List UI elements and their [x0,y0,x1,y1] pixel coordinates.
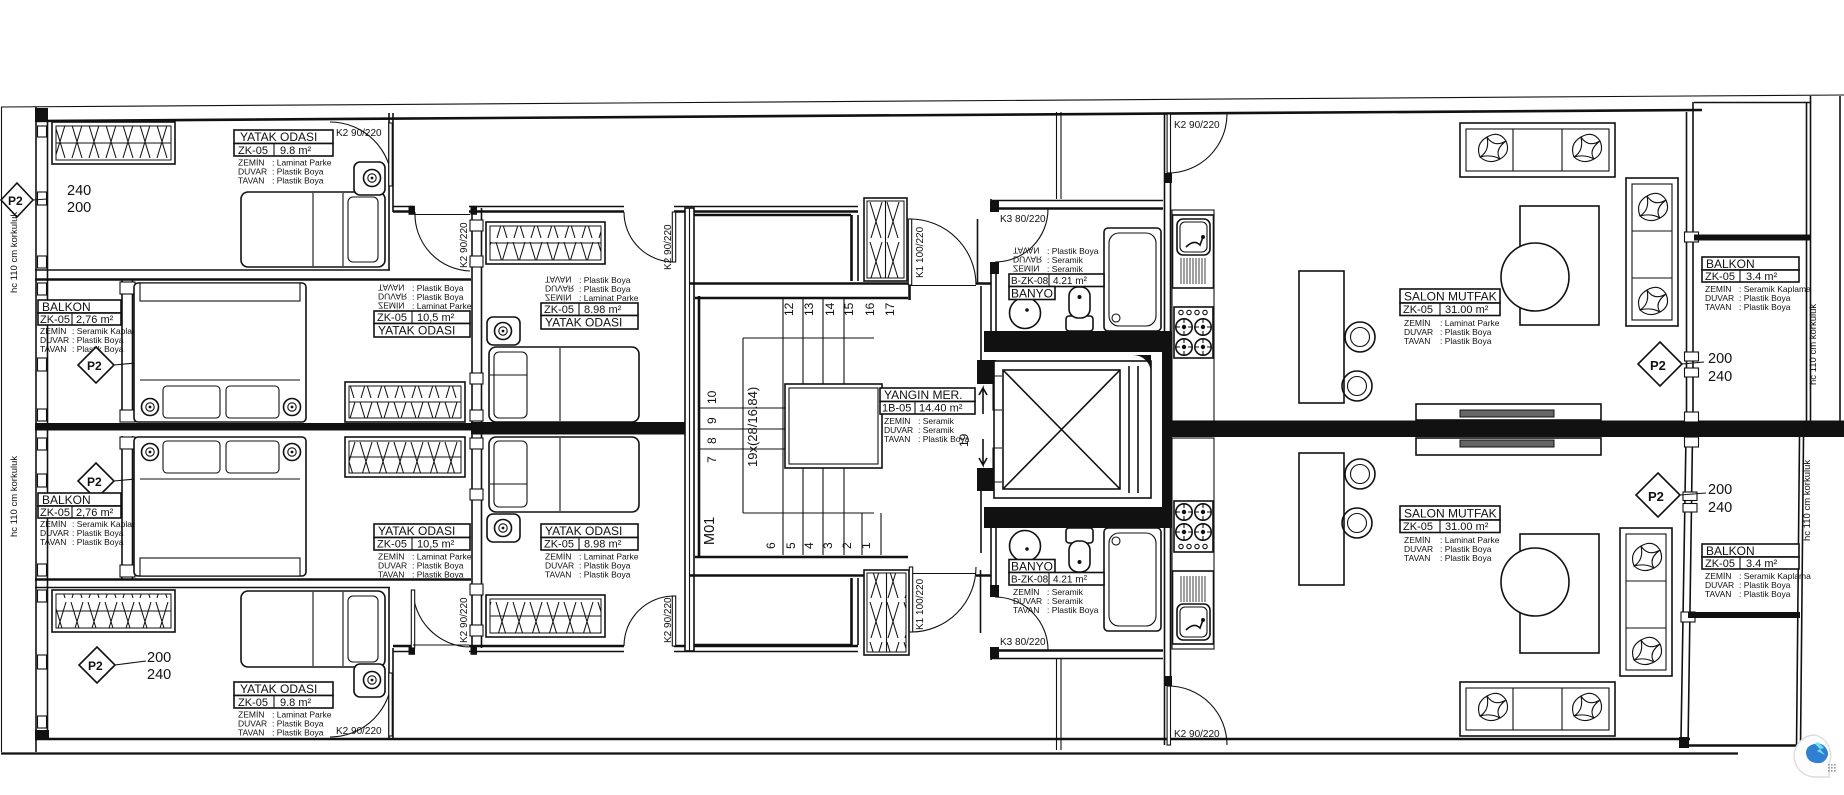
svg-text:2: 2 [840,542,854,549]
svg-text:YATAK ODASI: YATAK ODASI [240,130,317,144]
svg-text:hc 110 cm korkuluk: hc 110 cm korkuluk [1808,304,1819,385]
svg-text:K2 90/220: K2 90/220 [336,128,382,139]
svg-text:BALKON: BALKON [1706,544,1755,558]
svg-text:hc 110 cm korkuluk: hc 110 cm korkuluk [1802,460,1813,541]
svg-text:SALON MUTFAK: SALON MUTFAK [1404,507,1497,521]
svg-text:ZK-05: ZK-05 [544,304,574,316]
svg-text:TAVAN: TAVAN [545,570,571,580]
svg-text:19x(28/16.84): 19x(28/16.84) [745,387,760,467]
svg-text:10,5 m²: 10,5 m² [417,312,455,324]
svg-text:: Plastik Boya: : Plastik Boya [918,434,970,444]
svg-text:ZK-05: ZK-05 [1403,521,1433,533]
svg-text:: Laminat Parke: : Laminat Parke [579,293,639,303]
svg-text:ZK-05: ZK-05 [1705,271,1735,283]
svg-text:K1 100/220: K1 100/220 [915,578,926,630]
svg-text:2,76 m²: 2,76 m² [76,314,114,326]
svg-text:3.4 m²: 3.4 m² [1746,271,1778,283]
svg-text:TAVAN: TAVAN [545,275,571,285]
svg-text:ZK-05: ZK-05 [40,507,70,519]
svg-text:17: 17 [883,302,897,316]
svg-text:14.40 m²: 14.40 m² [919,403,963,415]
svg-text:240: 240 [67,183,91,199]
svg-text:31.00 m²: 31.00 m² [1445,304,1489,316]
svg-text:10,5 m²: 10,5 m² [417,539,455,551]
svg-text:: Plastik Boya: : Plastik Boya [1440,553,1492,563]
svg-text:5: 5 [784,542,798,549]
svg-text:15: 15 [842,302,856,316]
svg-text:SALON MUTFAK: SALON MUTFAK [1404,290,1497,304]
svg-text:: Plastik Boya: : Plastik Boya [1739,302,1791,312]
svg-text:ZK-05: ZK-05 [1705,558,1735,570]
svg-text:: Plastik Boya: : Plastik Boya [1440,336,1492,346]
svg-text:200: 200 [1708,351,1732,367]
svg-text:1B-05: 1B-05 [882,403,911,415]
svg-text:hc 110 cm korkuluk: hc 110 cm korkuluk [9,456,20,537]
svg-text:YATAK ODASI: YATAK ODASI [378,324,455,338]
svg-text:13: 13 [802,302,816,316]
svg-text:9: 9 [705,417,719,424]
svg-text:K1 100/220: K1 100/220 [915,226,926,278]
svg-text:: Laminat Parke: : Laminat Parke [412,301,472,311]
svg-text:TAVAN: TAVAN [884,434,910,444]
svg-text:200: 200 [1708,482,1732,498]
svg-text:9.8 m²: 9.8 m² [280,697,312,709]
svg-text:K3 80/220: K3 80/220 [1000,214,1046,225]
svg-text:3.4 m²: 3.4 m² [1746,558,1778,570]
svg-text:ZEMİN: ZEMİN [545,293,571,303]
svg-text:8: 8 [705,437,719,444]
svg-text:4.21 m²: 4.21 m² [1053,276,1088,287]
svg-text:240: 240 [147,667,171,683]
svg-text:: Plastik Boya: : Plastik Boya [1047,605,1099,615]
svg-text:ZK-05: ZK-05 [544,539,574,551]
svg-text:TAVAN: TAVAN [1705,589,1731,599]
svg-text:YATAK ODASI: YATAK ODASI [545,316,622,330]
svg-text:TAVAN: TAVAN [238,176,264,186]
svg-text:4.21 m²: 4.21 m² [1053,575,1088,586]
svg-text:YANGIN MER.: YANGIN MER. [884,388,962,402]
svg-text:200: 200 [147,650,171,666]
svg-text:TAVAN: TAVAN [40,344,66,354]
svg-text:240: 240 [1708,500,1732,516]
svg-text:P2: P2 [87,475,102,489]
svg-text:B-ZK-08: B-ZK-08 [1011,276,1049,287]
svg-text:DUVAR: DUVAR [545,284,574,294]
svg-text:P2: P2 [88,659,103,673]
svg-text:BANYO: BANYO [1011,560,1053,574]
svg-text:2,76 m²: 2,76 m² [76,507,114,519]
svg-text:: Plastik Boya: : Plastik Boya [72,537,124,547]
svg-text:ZK-05: ZK-05 [1403,304,1433,316]
svg-text:14: 14 [823,302,837,316]
svg-text:: Plastik Boya: : Plastik Boya [272,728,324,738]
svg-text:P2: P2 [1648,489,1664,504]
svg-text:K2 90/220: K2 90/220 [663,224,674,270]
svg-text:31.00 m²: 31.00 m² [1445,521,1489,533]
svg-text:P2: P2 [8,194,23,208]
svg-text:16: 16 [863,302,877,316]
svg-text:TAVAN: TAVAN [238,728,264,738]
svg-text:: Plastik Boya: : Plastik Boya [412,570,464,580]
svg-text:TAVAN: TAVAN [40,537,66,547]
svg-text:TAVAN: TAVAN [1404,553,1430,563]
svg-text:YATAK ODASI: YATAK ODASI [240,682,317,696]
svg-text:ZK-05: ZK-05 [238,697,268,709]
svg-text:K2 90/220: K2 90/220 [459,222,470,268]
svg-text:DUVAR: DUVAR [378,292,407,302]
svg-text:12: 12 [782,302,796,316]
svg-text:BALKON: BALKON [42,300,91,314]
svg-text:DUVAR: DUVAR [1013,255,1042,265]
svg-text:TAVAN: TAVAN [1013,605,1039,615]
svg-text:: Plastik Boya: : Plastik Boya [272,176,324,186]
svg-text:ZK-05: ZK-05 [377,312,407,324]
svg-text:1: 1 [859,542,873,549]
svg-text:TAVAN: TAVAN [1404,336,1430,346]
svg-text:K2 90/220: K2 90/220 [1174,120,1220,131]
svg-text:: Plastik Boya: : Plastik Boya [1739,589,1791,599]
svg-text:K2 90/220: K2 90/220 [663,597,674,643]
svg-text:YATAK ODASI: YATAK ODASI [378,524,455,538]
svg-text:BALKON: BALKON [1706,257,1755,271]
svg-text:8.98 m²: 8.98 m² [584,304,622,316]
svg-text:9.8 m²: 9.8 m² [280,145,312,157]
svg-text:8.98 m²: 8.98 m² [584,539,622,551]
svg-text:ZEMİN: ZEMİN [378,301,404,311]
svg-text:10: 10 [705,390,719,404]
svg-text:4: 4 [802,542,816,549]
svg-text:ZK-05: ZK-05 [377,539,407,551]
svg-text:ZK-05: ZK-05 [238,145,268,157]
svg-text:ZEMİN: ZEMİN [1013,264,1039,274]
svg-text:P2: P2 [1650,358,1666,373]
svg-text:200: 200 [67,200,91,216]
svg-text:B-ZK-08: B-ZK-08 [1011,575,1049,586]
svg-text:K2 90/220: K2 90/220 [336,726,382,737]
svg-text:7: 7 [705,456,719,463]
svg-text:hc 110 cm korkuluk: hc 110 cm korkuluk [9,212,20,293]
svg-text:: Seramik: : Seramik [1047,264,1084,274]
svg-text:BALKON: BALKON [42,493,91,507]
svg-text:M01: M01 [702,517,718,545]
svg-text:ZK-05: ZK-05 [40,314,70,326]
svg-text:YATAK ODASI: YATAK ODASI [545,524,622,538]
svg-text:BANYO: BANYO [1011,287,1053,301]
svg-text:240: 240 [1708,369,1732,385]
svg-text:K2 90/220: K2 90/220 [1174,729,1220,740]
svg-text:TAVAN: TAVAN [1705,302,1731,312]
svg-text:3: 3 [821,542,835,549]
svg-text:TAVAN: TAVAN [378,570,404,580]
svg-text:: Plastik Boya: : Plastik Boya [579,570,631,580]
svg-text:TAVAN: TAVAN [378,283,404,293]
svg-text:P2: P2 [87,359,102,373]
svg-text:K3 80/220: K3 80/220 [1000,637,1046,648]
svg-text:K2 90/220: K2 90/220 [459,597,470,643]
svg-text:6: 6 [764,542,778,549]
svg-text:TAVAN: TAVAN [1013,246,1039,256]
